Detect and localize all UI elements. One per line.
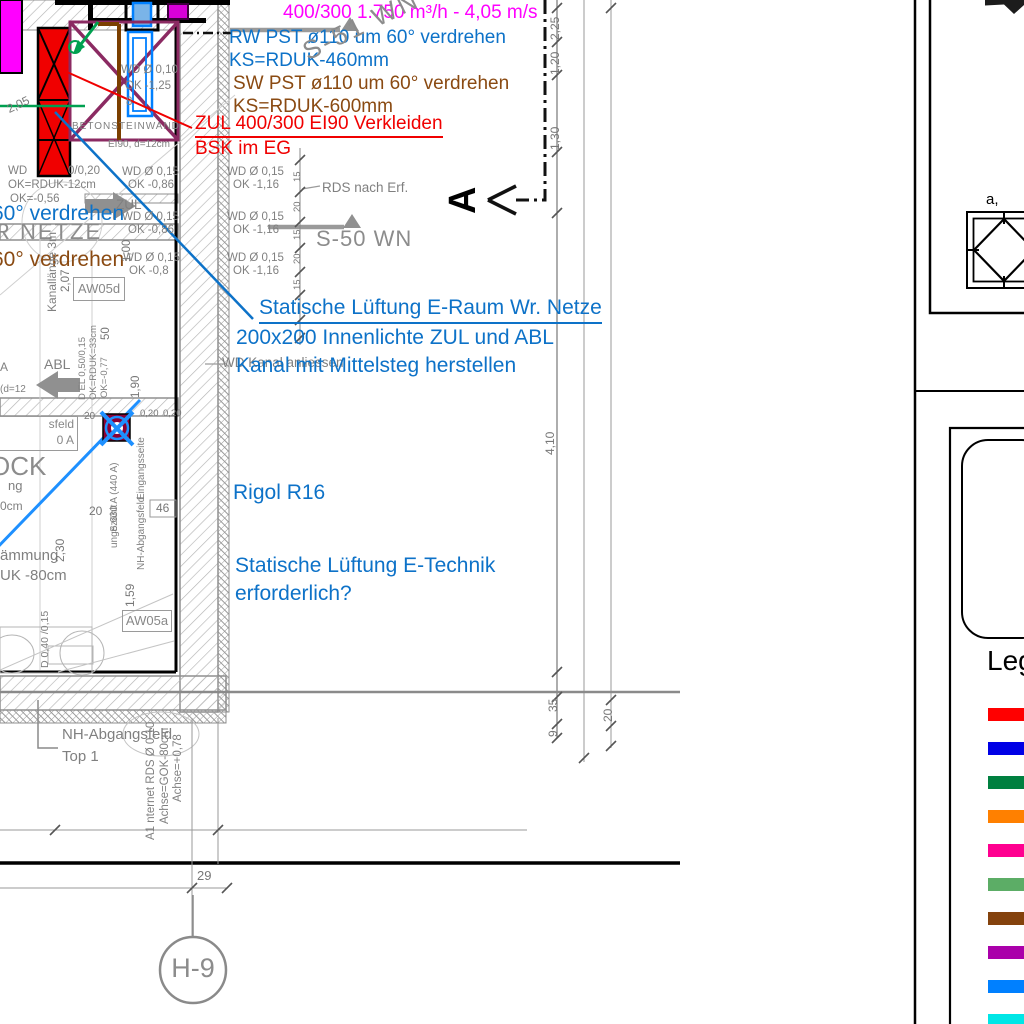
dim-410: 4,10 — [544, 432, 557, 455]
legend-color-swatch — [988, 878, 1024, 891]
ng-label: ng — [8, 479, 22, 493]
dim-207: 2,07 — [60, 270, 72, 292]
wd-level-note: WD Ø 0,15 — [122, 166, 179, 178]
wd-label: WD — [8, 165, 27, 177]
eight-label: 8 — [126, 96, 132, 108]
ok125-label: OK -1,25 — [125, 80, 171, 92]
section-a-letter: A — [443, 187, 484, 214]
rds-note: RDS nach Erf. — [322, 181, 408, 196]
etechnik-note-1: Statische Lüftung E-Technik — [235, 555, 495, 578]
dim-100: 1,00 — [121, 240, 133, 262]
legend-title: Legende — [987, 646, 1024, 676]
wd-level-note: WD Ø 0,15 — [227, 211, 284, 223]
ok077-note: OK=-0,77 — [100, 357, 110, 398]
achse-078-label: Achse=+0,78 — [172, 734, 184, 802]
cut-d12-label: (d=12 — [0, 385, 26, 396]
dim-9: 9 — [547, 730, 560, 737]
wall-hatching — [0, 0, 229, 723]
legend-color-swatch — [988, 708, 1024, 721]
e-do-label: D 0,40 /0,15 — [40, 611, 51, 668]
etechnik-note-2: erforderlich? — [235, 583, 352, 606]
damper-marker — [101, 412, 133, 445]
grid-h9-label: H-9 — [160, 954, 226, 983]
abl-arrow-label: ABL — [44, 357, 70, 372]
dim-230: 2,30 — [54, 539, 67, 562]
ok-level-note: OK -0,86 — [128, 179, 174, 191]
frac-label: 0/0,20 — [68, 165, 100, 177]
legend-color-swatch — [988, 1014, 1024, 1024]
nh-vert-label: NH-Abgangsfeld — [137, 497, 148, 570]
cad-plan-canvas: 400/300 1.750 m³/h - 4,05 m/s RW PST ø11… — [0, 0, 1024, 1024]
legend-symbol-frame — [962, 440, 1024, 638]
kanallaenge-label: Kanallänge 3m — [46, 232, 59, 312]
ok-rduk-label: OK=RDUK-12cm — [8, 179, 96, 191]
eraum-note-3: Kanal mit Mittelsteg herstellen — [236, 355, 516, 378]
dim-chain-label: 15 — [293, 279, 303, 290]
s50-label: S-50 WN — [316, 227, 412, 251]
top1-label: Top 1 — [62, 749, 99, 765]
sfeld-label-1: sfeld — [49, 417, 74, 431]
dim-20-right: 20 — [602, 709, 615, 722]
dim-46: 46 — [156, 502, 169, 515]
dim-35: 35 — [547, 699, 560, 712]
cm0-label: 0cm — [0, 500, 23, 513]
ok-level-note: OK -1,16 — [233, 265, 279, 277]
eraum-note-2: 200x200 Innenlichte ZUL und ABL — [236, 327, 554, 350]
eingangsseite-label: Eingangsseite — [137, 437, 148, 500]
red-shaft — [38, 28, 70, 176]
dim-130: 1,30 — [549, 127, 562, 150]
wd-level-note: WD Ø 0,15 — [227, 252, 284, 264]
zul-ei90-note: ZUL 400/300 EI90 Verkleiden — [195, 114, 443, 138]
legend-color-swatch — [988, 776, 1024, 789]
dim-chain-label: 15 — [293, 229, 303, 240]
el-note: D EL 0,50/0,15 — [78, 337, 88, 400]
grid-bubble-h9 — [160, 895, 226, 1003]
okrduk33-note: OK=RDUK=33cm — [89, 325, 99, 400]
dim-50: 50 — [100, 327, 112, 340]
daemmung-label: ämmung — [0, 548, 58, 564]
ok-level-note: OK -0,86 — [128, 224, 174, 236]
dim-190: 1,90 — [130, 376, 142, 398]
dim-20: 20 — [89, 505, 102, 518]
legend-color-swatch — [988, 946, 1024, 959]
ok-level-note: OK -1,16 — [233, 179, 279, 191]
aw05a-tag: AW05a — [122, 610, 172, 632]
dim-020a: 0,20 — [140, 409, 159, 419]
wd-level-note: WD Ø 0,15 — [227, 166, 284, 178]
betonsteinwand-label: BETONSTEINWAND — [72, 122, 180, 133]
red-leader-line — [58, 68, 192, 128]
achse-gok-label: Achse=GOK-80cm — [159, 728, 171, 824]
dim-chain-label: 20 — [293, 253, 303, 264]
ei90-label: EI90, d=12cm — [108, 140, 170, 151]
legend-color-swatch — [988, 912, 1024, 925]
sw-pst-note-1: SW PST ø110 um 60° verdrehen — [233, 74, 509, 95]
eraum-note-1: Statische Lüftung E-Raum Wr. Netze — [259, 297, 602, 324]
detail-a-label: a, — [986, 192, 999, 208]
detail-diamond-symbol — [967, 212, 1024, 288]
dim-20b: 20 — [84, 412, 95, 423]
ok-level-note: OK -1,16 — [233, 224, 279, 236]
cut-a-label: A — [0, 361, 8, 374]
ock-label: OCK — [0, 452, 46, 480]
dim-225: 2,25 — [549, 17, 562, 40]
s630-label: S 630 A (440 A) — [110, 463, 121, 533]
wd-level-note: WD Ø 0,15 — [122, 211, 179, 223]
bsk-note: BSK im EG — [195, 139, 291, 160]
aw05d-tag: AW05d — [73, 277, 125, 301]
legend-color-swatch — [988, 742, 1024, 755]
rigol-note: Rigol R16 — [233, 482, 325, 505]
legend-color-swatch — [988, 844, 1024, 857]
a1-internet-label: A1 nternet RDS Ø 0,10 — [145, 722, 157, 840]
zul-arrow-label: ZUL — [116, 198, 142, 213]
abl-arrow-icon — [36, 371, 80, 399]
dim-chain-label: 15 — [293, 171, 303, 182]
dim-020b: 0,20 — [163, 409, 182, 419]
legend-color-swatch — [988, 810, 1024, 823]
uk80-label: UK -80cm — [0, 568, 67, 584]
ok056-label: OK=-0,56 — [10, 193, 60, 205]
wd010-label: WD Ø 0,10 — [121, 64, 178, 76]
legend-color-swatch — [988, 980, 1024, 993]
dim-29: 29 — [197, 869, 211, 883]
verdrehen-brown-note: 60° verdrehen — [0, 249, 124, 272]
title-block-frame — [915, 0, 1024, 1024]
magenta-duct — [0, 0, 22, 73]
dim-120: 1,20 — [549, 52, 562, 75]
dim-chain-label: 20 — [293, 201, 303, 212]
drawing-linework — [0, 0, 1024, 1024]
dim-159: 1,59 — [124, 584, 137, 607]
north-arrow-icon — [985, 0, 1024, 14]
sfeld-label-2: 0 A — [57, 433, 74, 447]
ok-level-note: OK -0,8 — [129, 265, 169, 277]
magenta-box — [168, 4, 188, 19]
